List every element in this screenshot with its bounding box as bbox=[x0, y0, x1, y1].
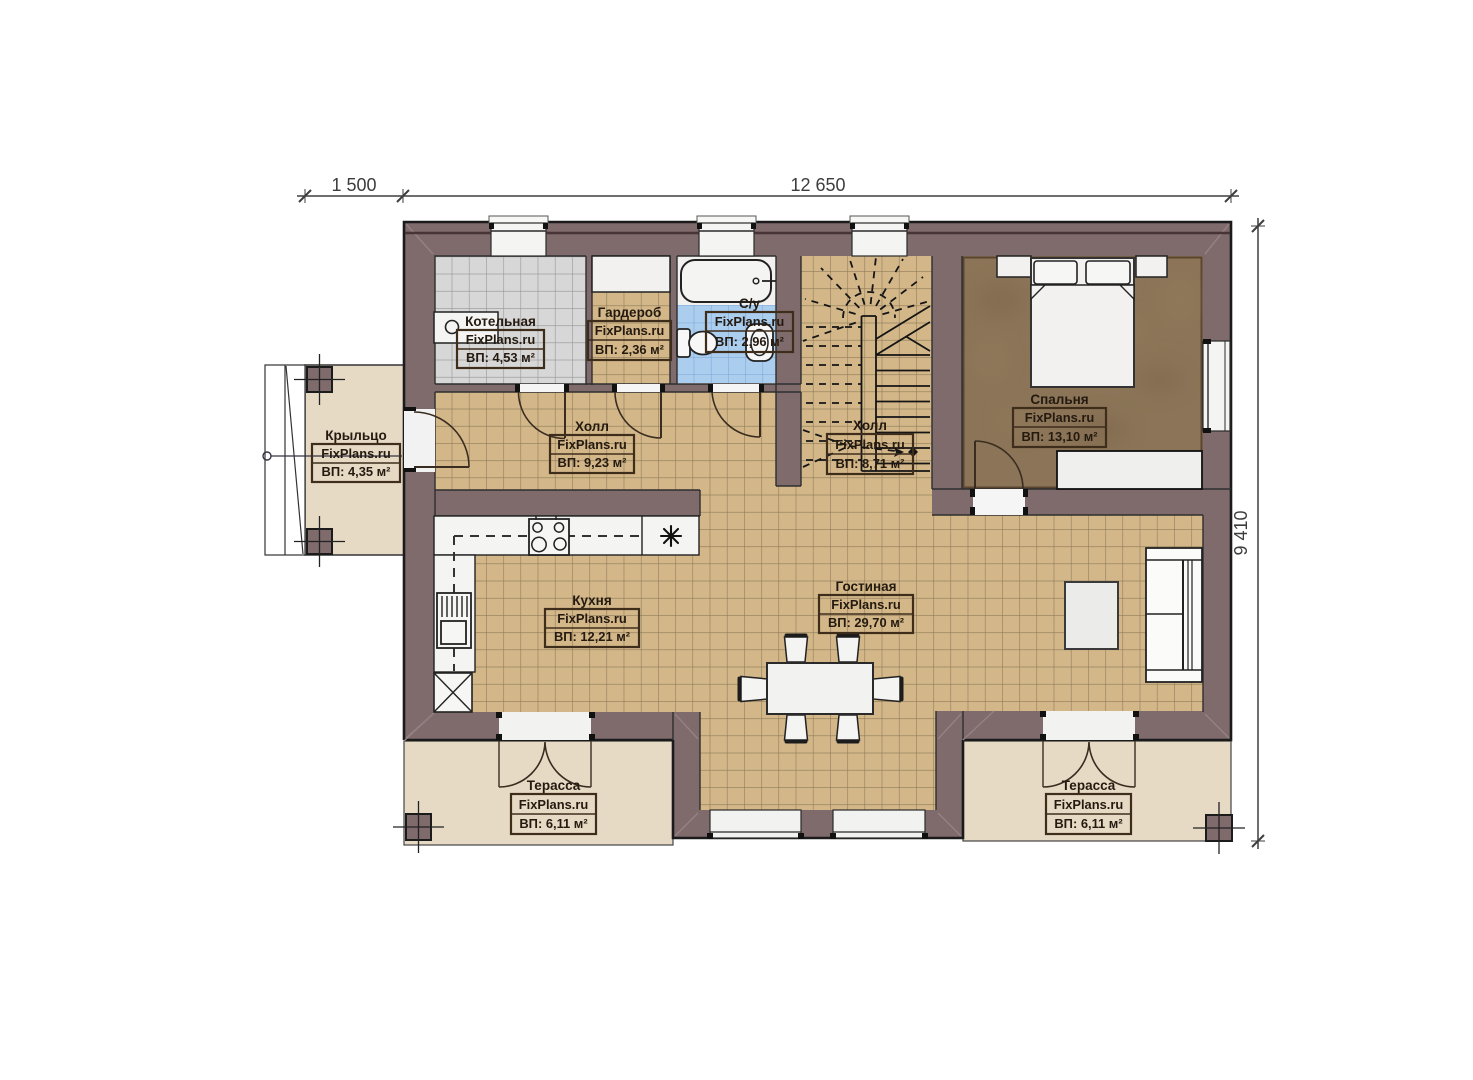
svg-text:Холл: Холл bbox=[575, 419, 609, 434]
svg-text:1 500: 1 500 bbox=[331, 175, 376, 195]
svg-text:С/у: С/у bbox=[739, 296, 761, 311]
svg-text:FixPlans.ru: FixPlans.ru bbox=[715, 314, 785, 329]
svg-text:ВП: 9,23 м²: ВП: 9,23 м² bbox=[558, 455, 628, 470]
svg-text:FixPlans.ru: FixPlans.ru bbox=[595, 323, 665, 338]
svg-text:FixPlans.ru: FixPlans.ru bbox=[519, 797, 589, 812]
svg-text:12 650: 12 650 bbox=[790, 175, 845, 195]
svg-text:FixPlans.ru: FixPlans.ru bbox=[557, 437, 627, 452]
svg-text:ВП: 12,21 м²: ВП: 12,21 м² bbox=[554, 629, 631, 644]
svg-text:ВП: 2,96 м²: ВП: 2,96 м² bbox=[715, 334, 785, 349]
svg-text:ВП: 4,35 м²: ВП: 4,35 м² bbox=[322, 464, 392, 479]
svg-text:ВП: 2,36 м²: ВП: 2,36 м² bbox=[595, 342, 665, 357]
svg-text:Крыльцо: Крыльцо bbox=[325, 428, 386, 443]
svg-text:FixPlans.ru: FixPlans.ru bbox=[835, 437, 905, 452]
svg-text:ВП: 6,11 м²: ВП: 6,11 м² bbox=[519, 816, 588, 831]
svg-text:Спальня: Спальня bbox=[1030, 392, 1088, 407]
svg-text:Гостиная: Гостиная bbox=[835, 579, 896, 594]
svg-text:ВП: 13,10 м²: ВП: 13,10 м² bbox=[1021, 429, 1098, 444]
svg-text:ВП: 4,53 м²: ВП: 4,53 м² bbox=[466, 350, 536, 365]
svg-text:FixPlans.ru: FixPlans.ru bbox=[1025, 410, 1095, 425]
svg-text:Терасса: Терасса bbox=[1062, 778, 1116, 793]
svg-text:FixPlans.ru: FixPlans.ru bbox=[321, 446, 391, 461]
svg-text:FixPlans.ru: FixPlans.ru bbox=[557, 611, 627, 626]
svg-text:ВП: 6,11 м²: ВП: 6,11 м² bbox=[1054, 816, 1123, 831]
svg-text:9 410: 9 410 bbox=[1231, 510, 1251, 555]
svg-text:Холл: Холл bbox=[853, 418, 887, 433]
svg-text:ВП: 29,70 м²: ВП: 29,70 м² bbox=[828, 615, 905, 630]
svg-text:Кухня: Кухня bbox=[572, 593, 611, 608]
svg-text:FixPlans.ru: FixPlans.ru bbox=[831, 597, 901, 612]
svg-text:Котельная: Котельная bbox=[465, 314, 536, 329]
svg-text:Гардероб: Гардероб bbox=[598, 305, 662, 320]
svg-text:FixPlans.ru: FixPlans.ru bbox=[466, 332, 536, 347]
svg-text:FixPlans.ru: FixPlans.ru bbox=[1054, 797, 1124, 812]
svg-text:Терасса: Терасса bbox=[527, 778, 581, 793]
svg-text:ВП: 8,71 м²: ВП: 8,71 м² bbox=[836, 456, 906, 471]
